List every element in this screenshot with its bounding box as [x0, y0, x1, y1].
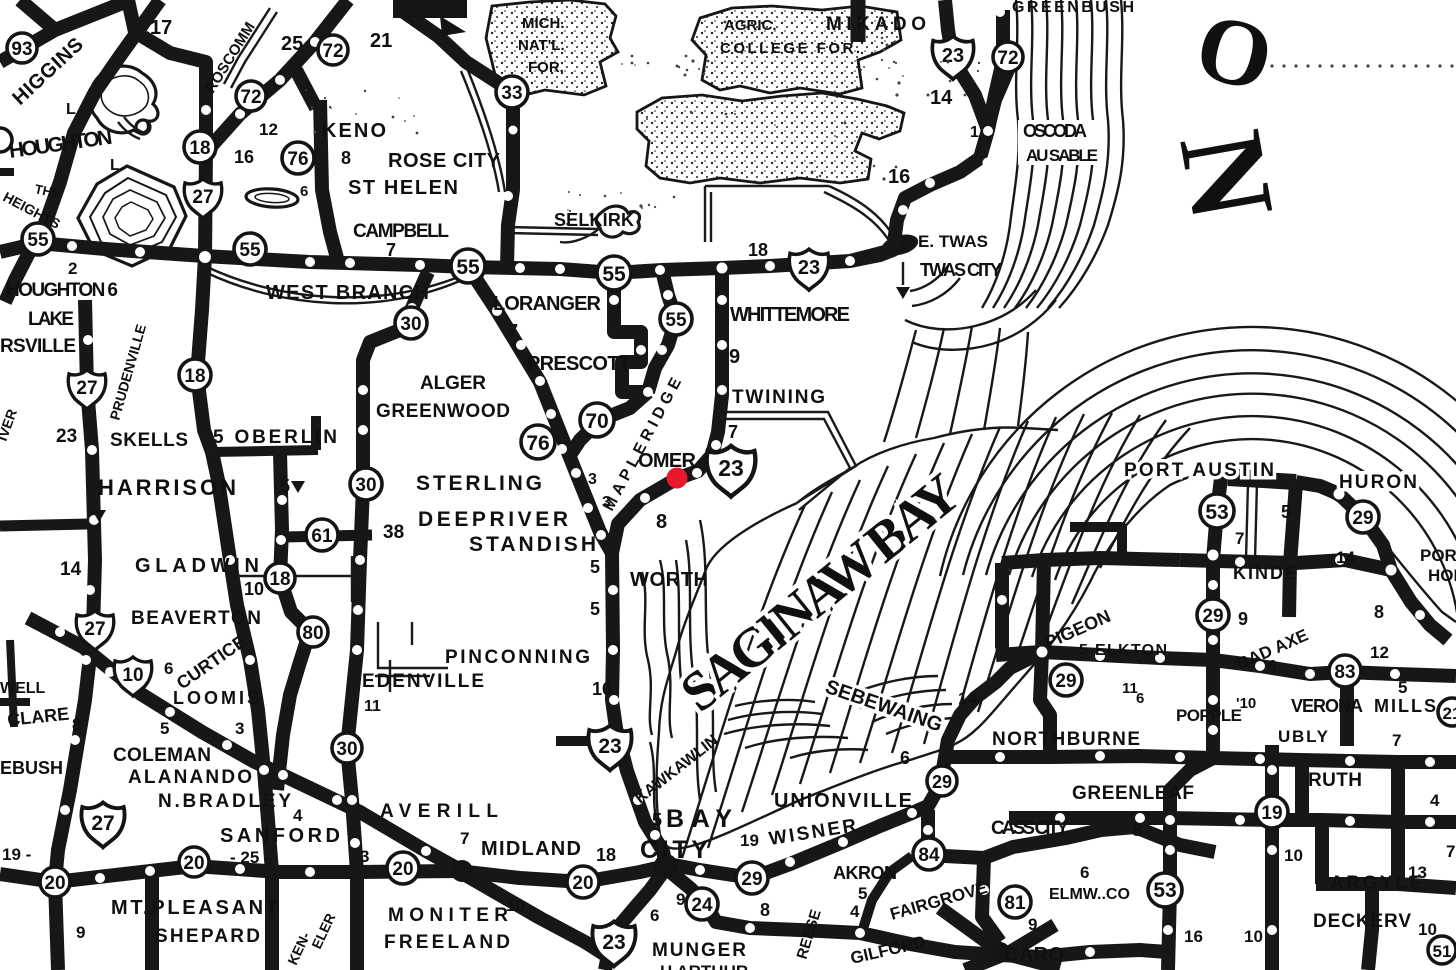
svg-text:CASS CITY: CASS CITY [991, 818, 1069, 839]
svg-text:HURON: HURON [1339, 472, 1417, 493]
svg-text:3: 3 [588, 471, 597, 488]
svg-text:STANDISH: STANDISH [469, 533, 596, 556]
svg-text:10: 10 [1244, 927, 1263, 946]
svg-text:STERLING: STERLING [416, 472, 542, 495]
svg-text:PINCONNING: PINCONNING [445, 647, 590, 668]
svg-text:14: 14 [1336, 548, 1355, 567]
svg-text:MUNGER: MUNGER [652, 940, 746, 961]
svg-text:10: 10 [244, 579, 264, 599]
svg-text:93: 93 [11, 39, 32, 60]
svg-text:MICH.: MICH. [522, 15, 565, 32]
svg-text:10: 10 [1284, 846, 1303, 865]
svg-text:DEEPRIVER: DEEPRIVER [418, 508, 568, 531]
svg-text:TWINING: TWINING [732, 387, 825, 408]
svg-text:4: 4 [850, 902, 860, 921]
svg-text:7: 7 [1235, 529, 1244, 548]
svg-text:12: 12 [259, 120, 278, 139]
svg-text:29: 29 [1352, 508, 1373, 529]
svg-text:PRESCOTT: PRESCOTT [527, 353, 631, 375]
svg-text:18: 18 [184, 366, 205, 387]
svg-text:17: 17 [150, 17, 172, 39]
svg-text:19 -: 19 - [2, 845, 31, 864]
svg-text:COLEMAN: COLEMAN [113, 745, 211, 766]
svg-text:MIKADO: MIKADO [826, 14, 926, 35]
svg-text:55: 55 [239, 240, 261, 261]
svg-text:HOR: HOR [1428, 566, 1456, 585]
svg-text:CURTICE: CURTICE [173, 631, 250, 693]
svg-text:WELL: WELL [0, 680, 46, 697]
svg-text:27: 27 [192, 187, 213, 208]
svg-text:L.: L. [110, 157, 124, 174]
svg-text:6: 6 [650, 906, 659, 925]
svg-text:3: 3 [235, 719, 244, 738]
svg-text:29: 29 [932, 772, 952, 792]
svg-text:29: 29 [1202, 606, 1223, 627]
svg-text:ELMW..CO: ELMW..CO [1049, 886, 1130, 903]
svg-text:30: 30 [400, 314, 421, 335]
svg-text:5 ELKTON: 5 ELKTON [1079, 642, 1167, 659]
svg-text:72: 72 [240, 87, 261, 108]
svg-text:76: 76 [526, 432, 549, 455]
svg-text:30: 30 [336, 739, 357, 760]
svg-text:2: 2 [68, 259, 77, 278]
svg-text:N.BRADLEY: N.BRADLEY [158, 791, 291, 812]
svg-text:CAMPBELL: CAMPBELL [353, 221, 449, 242]
svg-text:23: 23 [942, 45, 964, 67]
svg-text:8: 8 [656, 511, 667, 533]
svg-text:20: 20 [44, 873, 65, 894]
svg-text:SANFORD: SANFORD [220, 825, 340, 847]
svg-text:5: 5 [590, 599, 600, 619]
svg-text:7: 7 [1392, 731, 1401, 750]
svg-text:FOR.: FOR. [528, 59, 564, 76]
svg-text:18: 18 [189, 138, 210, 159]
svg-text:7: 7 [728, 422, 738, 442]
svg-text:6: 6 [1136, 690, 1144, 707]
svg-text:9: 9 [76, 923, 85, 942]
svg-text:5: 5 [1281, 502, 1291, 522]
svg-text:16: 16 [592, 679, 612, 699]
svg-text:23: 23 [56, 426, 77, 447]
svg-text:24: 24 [691, 895, 713, 916]
svg-text:16: 16 [888, 166, 910, 188]
svg-text:20: 20 [183, 853, 204, 874]
svg-text:CARO: CARO [1004, 944, 1064, 966]
svg-text:KEN-: KEN- [284, 929, 313, 967]
svg-text:80: 80 [302, 623, 323, 644]
svg-text:55: 55 [456, 256, 480, 279]
svg-text:27: 27 [76, 378, 97, 399]
svg-text:23: 23 [798, 257, 820, 279]
svg-text:29: 29 [1055, 671, 1076, 692]
svg-text:6: 6 [1268, 658, 1277, 675]
svg-text:O: O [1186, 0, 1283, 112]
svg-text:WORTH: WORTH [630, 569, 708, 591]
svg-text:SELKIRK: SELKIRK [554, 210, 634, 230]
svg-text:KAWKAWLIN: KAWKAWLIN [632, 732, 722, 807]
svg-text:7: 7 [508, 321, 518, 341]
svg-text:14: 14 [958, 689, 977, 708]
svg-text:10: 10 [122, 665, 143, 686]
svg-text:9: 9 [729, 346, 740, 368]
svg-text:11: 11 [364, 698, 381, 715]
svg-text:COLLEGE FOR.: COLLEGE FOR. [720, 40, 860, 57]
svg-text:AVERILL: AVERILL [380, 801, 498, 822]
svg-text:H ARTHUR: H ARTHUR [660, 962, 748, 970]
svg-text:AU SABLE: AU SABLE [1026, 146, 1098, 165]
svg-text:GREENLEAF: GREENLEAF [1072, 783, 1194, 804]
svg-text:N: N [1154, 121, 1300, 229]
svg-text:SAGINAW BAY: SAGINAW BAY [669, 459, 976, 724]
svg-text:ELER: ELER [308, 911, 338, 952]
svg-text:8: 8 [1374, 602, 1384, 622]
svg-text:'10: '10 [1236, 695, 1256, 712]
svg-text:MILLS: MILLS [1374, 696, 1436, 716]
svg-text:20: 20 [572, 873, 593, 894]
svg-text:DECKERV: DECKERV [1313, 911, 1411, 932]
svg-text:51: 51 [1433, 942, 1452, 961]
svg-text:GLADWIN: GLADWIN [135, 555, 259, 577]
svg-text:MIDLAND: MIDLAND [481, 838, 581, 860]
svg-text:53: 53 [1153, 879, 1176, 902]
svg-text:25: 25 [281, 33, 303, 55]
svg-text:LAKE: LAKE [28, 309, 74, 330]
svg-text:MT.PLEASANT: MT.PLEASANT [111, 897, 278, 919]
svg-text:1: 1 [970, 124, 979, 141]
svg-text:IVER: IVER [0, 407, 20, 443]
svg-text:8: 8 [1132, 820, 1142, 840]
svg-text:TWAS CITY: TWAS CITY [920, 260, 1002, 280]
svg-text:19: 19 [1261, 803, 1282, 824]
svg-text:BAY: BAY [666, 805, 732, 833]
svg-text:6: 6 [900, 748, 910, 768]
svg-text:23: 23 [598, 735, 621, 758]
svg-text:EBUSH: EBUSH [0, 758, 63, 778]
svg-text:GREENWOOD: GREENWOOD [376, 401, 510, 422]
svg-text:6: 6 [1080, 863, 1089, 882]
svg-text:3: 3 [360, 847, 369, 866]
svg-text:23: 23 [602, 931, 625, 954]
svg-text:14: 14 [930, 87, 953, 109]
svg-text:5 OBERLIN: 5 OBERLIN [213, 427, 337, 448]
svg-text:72: 72 [997, 48, 1018, 69]
svg-text:5: 5 [160, 719, 169, 738]
svg-text:E. TWAS: E. TWAS [918, 232, 988, 251]
svg-text:HOUGHTON 6: HOUGHTON 6 [6, 280, 118, 301]
svg-text:27: 27 [91, 812, 114, 835]
svg-text:RSVILLE: RSVILLE [0, 336, 76, 357]
svg-text:NAT'L.: NAT'L. [518, 37, 565, 54]
svg-text:4: 4 [293, 806, 303, 825]
svg-text:23: 23 [718, 455, 744, 481]
svg-text:WEST BRANCH: WEST BRANCH [266, 282, 429, 304]
svg-text:KENO: KENO [322, 120, 386, 142]
svg-text:18: 18 [748, 240, 768, 260]
svg-text:55: 55 [665, 310, 687, 331]
svg-text:21: 21 [1443, 704, 1456, 723]
svg-text:5: 5 [590, 557, 600, 577]
svg-text:UBLY: UBLY [1278, 727, 1329, 746]
svg-text:16: 16 [1184, 927, 1203, 946]
svg-text:ROSE CITY: ROSE CITY [388, 150, 501, 172]
svg-text:SKELLS: SKELLS [110, 430, 188, 451]
svg-text:ALANANDO: ALANANDO [128, 767, 252, 788]
svg-text:7: 7 [460, 829, 469, 848]
svg-text:RUTH: RUTH [1308, 770, 1362, 791]
svg-text:33: 33 [501, 83, 522, 104]
svg-text:13: 13 [1408, 863, 1427, 882]
svg-text:5: 5 [652, 810, 662, 830]
svg-text:OSCODA: OSCODA [1023, 121, 1087, 141]
svg-text:21: 21 [370, 30, 392, 52]
svg-text:BEAVERTON: BEAVERTON [131, 608, 261, 629]
svg-text:55: 55 [27, 230, 49, 251]
svg-text:6: 6 [300, 183, 308, 200]
svg-text:SHEPARD: SHEPARD [155, 926, 260, 947]
svg-text:27: 27 [84, 619, 105, 640]
svg-text:PORT: PORT [1420, 546, 1456, 565]
svg-text:76: 76 [287, 149, 308, 170]
svg-text:KINDE: KINDE [1233, 563, 1297, 583]
svg-text:- 25 -: - 25 - [230, 848, 270, 867]
svg-text:19: 19 [740, 831, 759, 850]
svg-text:8: 8 [341, 148, 351, 168]
svg-text:72: 72 [322, 41, 343, 62]
svg-text:18: 18 [596, 845, 616, 865]
svg-text:4: 4 [1430, 791, 1440, 810]
svg-text:5: 5 [1398, 678, 1407, 697]
svg-text:83: 83 [1334, 662, 1355, 683]
svg-text:7: 7 [386, 240, 396, 260]
svg-text:9: 9 [1028, 915, 1037, 934]
svg-text:84: 84 [918, 845, 940, 866]
svg-text:ST HELEN: ST HELEN [348, 177, 458, 199]
svg-text:53: 53 [1205, 501, 1228, 524]
svg-text:10: 10 [506, 896, 525, 915]
svg-text:20: 20 [392, 859, 413, 880]
svg-text:EDENVILLE: EDENVILLE [362, 671, 484, 692]
svg-text:10: 10 [1418, 920, 1437, 939]
svg-text:AGRIC.: AGRIC. [724, 17, 777, 34]
svg-text:70: 70 [585, 410, 608, 433]
svg-text:7: 7 [1446, 842, 1455, 861]
svg-text:CITY: CITY [640, 836, 708, 864]
svg-text:12: 12 [1370, 643, 1389, 662]
svg-text:WHITTEMORE: WHITTEMORE [730, 304, 850, 326]
svg-text:5: 5 [280, 476, 290, 496]
svg-text:18: 18 [269, 569, 290, 590]
svg-text:VERONA: VERONA [1291, 696, 1363, 716]
svg-text:HARRISON: HARRISON [98, 475, 236, 500]
svg-text:POPPLE: POPPLE [1176, 706, 1242, 725]
svg-text:55: 55 [602, 263, 626, 286]
svg-text:14: 14 [60, 559, 82, 580]
svg-text:61: 61 [311, 526, 333, 547]
svg-text:5: 5 [858, 884, 867, 903]
svg-text:MONITER: MONITER [388, 905, 508, 926]
svg-text:16: 16 [234, 147, 254, 167]
svg-text:81: 81 [1004, 893, 1026, 914]
svg-text:PRUDENVILLE: PRUDENVILLE [107, 322, 150, 421]
svg-text:GREENBUSH: GREENBUSH [1012, 0, 1134, 16]
svg-text:NORTHBURNE: NORTHBURNE [992, 729, 1140, 750]
svg-text:FREELAND: FREELAND [384, 932, 510, 953]
svg-text:L: L [66, 101, 76, 118]
svg-text:29: 29 [741, 869, 762, 890]
svg-text:ALGER: ALGER [420, 373, 486, 394]
svg-text:FAIRGROVE: FAIRGROVE [888, 878, 989, 924]
svg-text:30: 30 [355, 475, 376, 496]
svg-text:38: 38 [383, 522, 404, 543]
svg-text:LORANGER: LORANGER [493, 293, 602, 315]
svg-text:UNIONVILLE: UNIONVILLE [774, 790, 912, 812]
svg-text:6: 6 [164, 659, 173, 678]
svg-text:9: 9 [676, 890, 685, 909]
svg-text:9: 9 [1238, 609, 1248, 629]
svg-text:8: 8 [760, 900, 770, 920]
svg-text:8: 8 [72, 715, 81, 734]
svg-text:AKRON: AKRON [833, 863, 897, 883]
